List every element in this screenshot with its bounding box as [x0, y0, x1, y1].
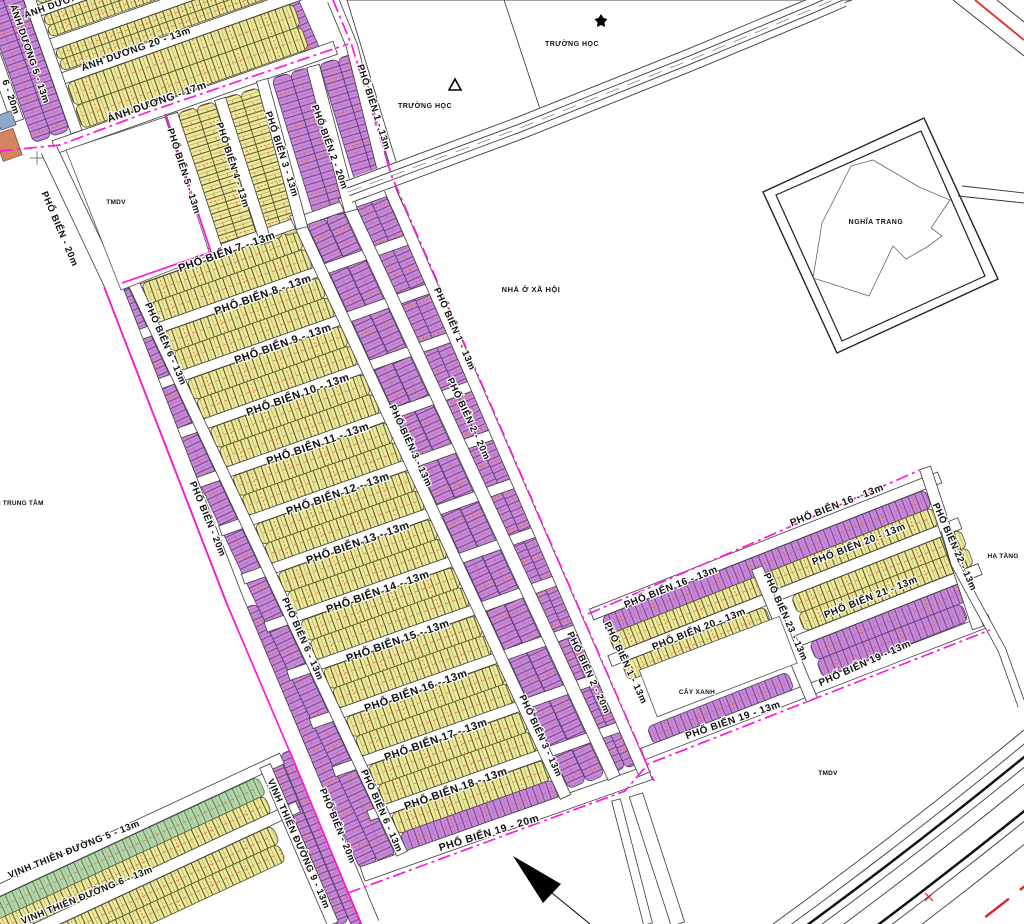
svg-text:CÂY XANH: CÂY XANH [679, 687, 715, 696]
svg-text:BIỂN TRUNG TÂM: BIỂN TRUNG TÂM [0, 498, 44, 507]
svg-text:TMDV: TMDV [106, 199, 126, 206]
svg-text:TMDV: TMDV [818, 770, 838, 777]
svg-text:NGHĨA TRANG: NGHĨA TRANG [849, 217, 904, 226]
svg-text:NHÀ Ở XÃ HỘI: NHÀ Ở XÃ HỘI [502, 285, 561, 294]
svg-text:TRƯỜNG HỌC: TRƯỜNG HỌC [545, 39, 599, 48]
svg-text:TRƯỜNG HỌC: TRƯỜNG HỌC [398, 101, 452, 110]
